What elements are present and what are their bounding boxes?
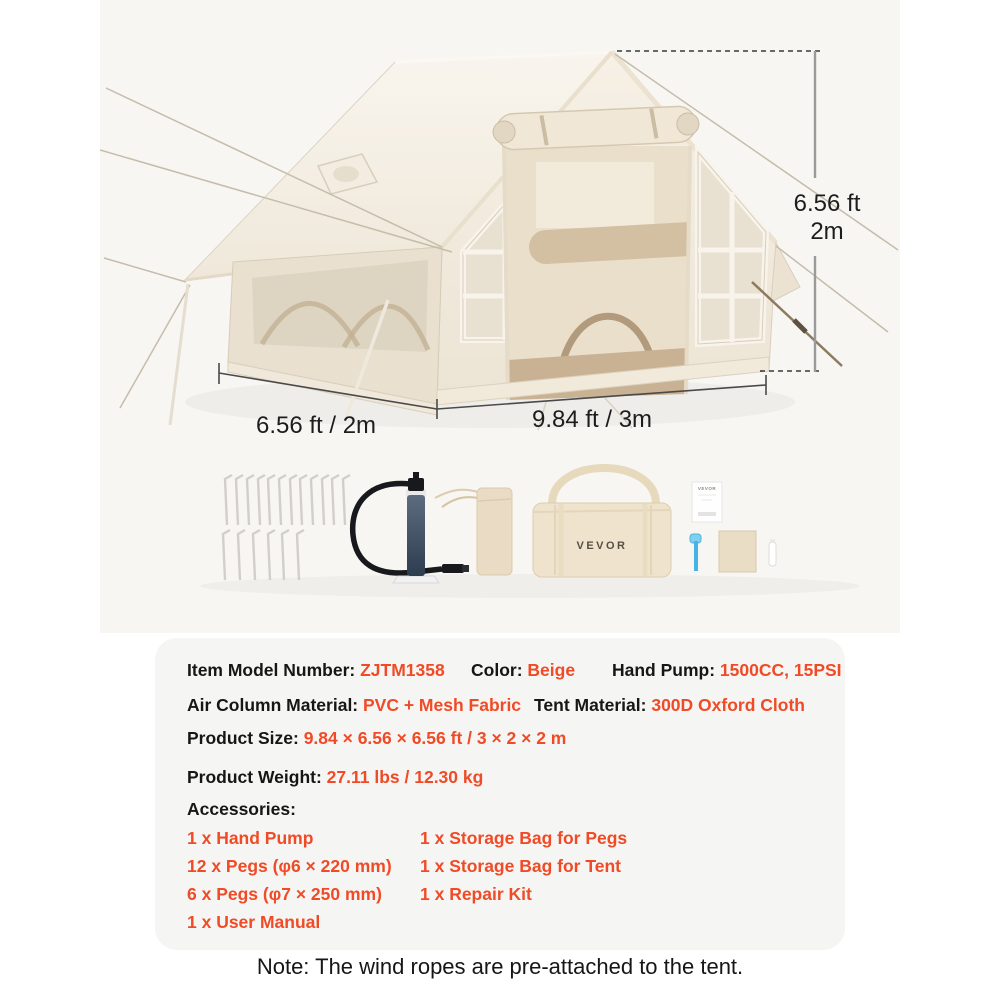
peg-storage-bag xyxy=(435,488,512,575)
pump-handle xyxy=(408,478,424,491)
bag-handles xyxy=(552,468,656,504)
pump-cylinder xyxy=(407,495,425,576)
repair-glue-tube xyxy=(690,534,701,571)
height-m: 2m xyxy=(794,218,861,246)
pegs-bottom-row xyxy=(223,530,304,580)
right-awning-flap xyxy=(771,243,800,302)
tent-storage-bag: VEVOR xyxy=(533,468,671,577)
hand-pump xyxy=(353,472,469,583)
note-text: Note: The wind ropes are pre-attached to… xyxy=(0,954,1000,980)
dimension-height-label: 6.56 ft 2m xyxy=(794,190,861,245)
spec-color: Color: Beige xyxy=(471,660,575,681)
spec-product-size: Product Size: 9.84 × 6.56 × 6.56 ft / 3 … xyxy=(187,728,566,749)
spec-tent-material: Tent Material: 300D Oxford Cloth xyxy=(534,695,805,716)
spec-air-column-material: Air Column Material: PVC + Mesh Fabric xyxy=(187,695,521,716)
door-inner-window xyxy=(536,162,654,228)
product-spec-image: VEVOR VEVOR 6.56 ft 2m 6. xyxy=(0,0,1000,1000)
accessory-item: 1 x Hand Pump xyxy=(187,828,313,849)
product-photo: VEVOR VEVOR 6.56 ft 2m 6. xyxy=(100,0,900,633)
bag-brand-logo: VEVOR xyxy=(576,540,627,552)
repair-mini-tube xyxy=(769,539,776,566)
tent xyxy=(185,52,800,415)
accessory-item: 1 x Repair Kit xyxy=(420,884,532,905)
spec-hand-pump: Hand Pump: 1500CC, 15PSI xyxy=(612,660,842,681)
spec-item-model: Item Model Number: ZJTM1358 xyxy=(187,660,445,681)
accessory-item: 1 x User Manual xyxy=(187,912,320,933)
accessory-item: 1 x Storage Bag for Tent xyxy=(420,856,621,877)
height-ft: 6.56 ft xyxy=(794,190,861,218)
repair-patch xyxy=(719,531,756,572)
user-manual: VEVOR xyxy=(692,482,722,522)
dimension-depth-label: 6.56 ft / 2m xyxy=(256,412,376,440)
roof-vent-window xyxy=(333,166,359,182)
manual-brand-logo: VEVOR xyxy=(698,486,717,491)
spec-accessories-label: Accessories: xyxy=(187,799,296,820)
front-right-window xyxy=(698,152,766,344)
tent-door xyxy=(492,106,699,400)
spec-product-weight: Product Weight: 27.11 lbs / 12.30 kg xyxy=(187,767,483,788)
pump-nozzle xyxy=(442,564,464,573)
pump-hose xyxy=(353,484,442,573)
dimension-width-label: 9.84 ft / 3m xyxy=(532,406,652,434)
pegs-top-row xyxy=(225,475,350,525)
tent-illustration: VEVOR VEVOR xyxy=(100,0,900,633)
spec-panel: Item Model Number: ZJTM1358 Color: Beige… xyxy=(155,638,845,950)
accessory-item: 6 x Pegs (φ7 × 250 mm) xyxy=(187,884,382,905)
pump-base xyxy=(393,576,439,583)
accessory-item: 12 x Pegs (φ6 × 220 mm) xyxy=(187,856,392,877)
accessory-item: 1 x Storage Bag for Pegs xyxy=(420,828,627,849)
